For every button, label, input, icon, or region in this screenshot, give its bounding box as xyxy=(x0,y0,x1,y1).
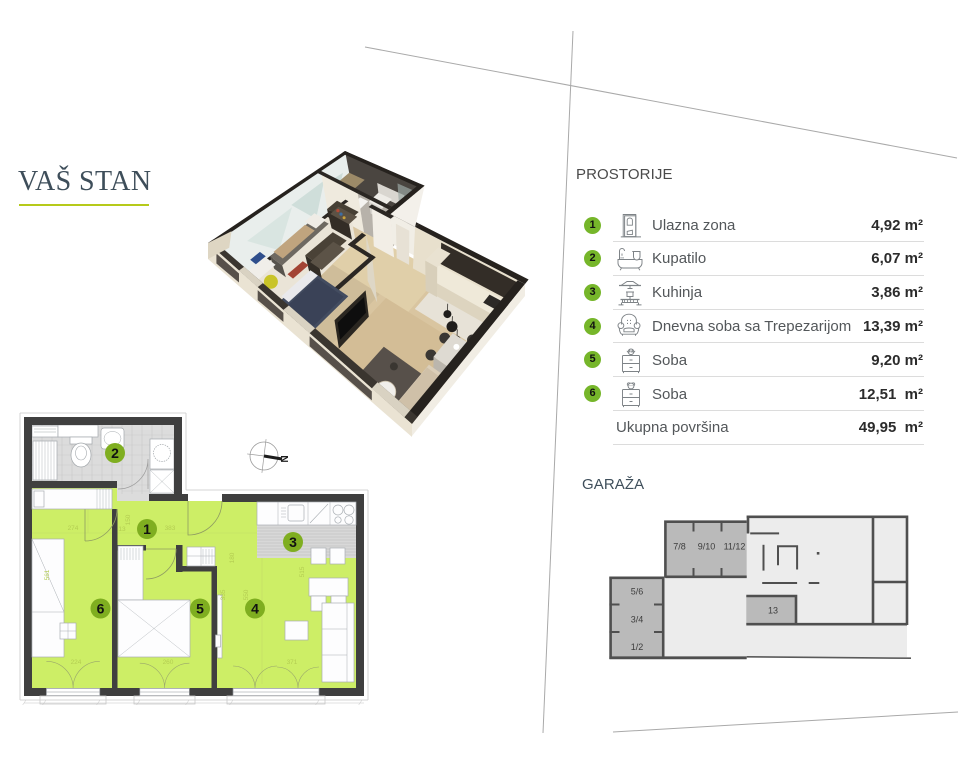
svg-text:561: 561 xyxy=(44,569,51,580)
svg-text:550: 550 xyxy=(243,589,250,600)
svg-text:383: 383 xyxy=(165,525,176,532)
svg-text:515: 515 xyxy=(299,566,306,577)
svg-text:5: 5 xyxy=(196,601,204,617)
svg-text:4: 4 xyxy=(251,601,259,617)
svg-text:3: 3 xyxy=(289,534,297,550)
svg-text:6: 6 xyxy=(97,601,105,617)
svg-text:13: 13 xyxy=(768,606,778,616)
svg-text:N: N xyxy=(278,455,289,462)
svg-text:13: 13 xyxy=(118,526,126,533)
svg-text:335: 335 xyxy=(220,589,227,600)
svg-text:5/6: 5/6 xyxy=(631,587,644,597)
svg-text:260: 260 xyxy=(163,659,174,666)
svg-text:150: 150 xyxy=(125,514,132,525)
svg-text:274: 274 xyxy=(68,525,79,532)
svg-text:7/8: 7/8 xyxy=(673,542,686,552)
svg-text:371: 371 xyxy=(287,659,298,666)
svg-text:2: 2 xyxy=(111,445,119,461)
svg-text:3/4: 3/4 xyxy=(631,615,644,625)
svg-text:180: 180 xyxy=(229,552,236,563)
svg-text:11/12: 11/12 xyxy=(724,542,746,552)
svg-text:9/10: 9/10 xyxy=(698,542,716,552)
svg-text:1: 1 xyxy=(143,521,151,537)
svg-text:224: 224 xyxy=(71,659,82,666)
svg-text:1/2: 1/2 xyxy=(631,642,644,652)
